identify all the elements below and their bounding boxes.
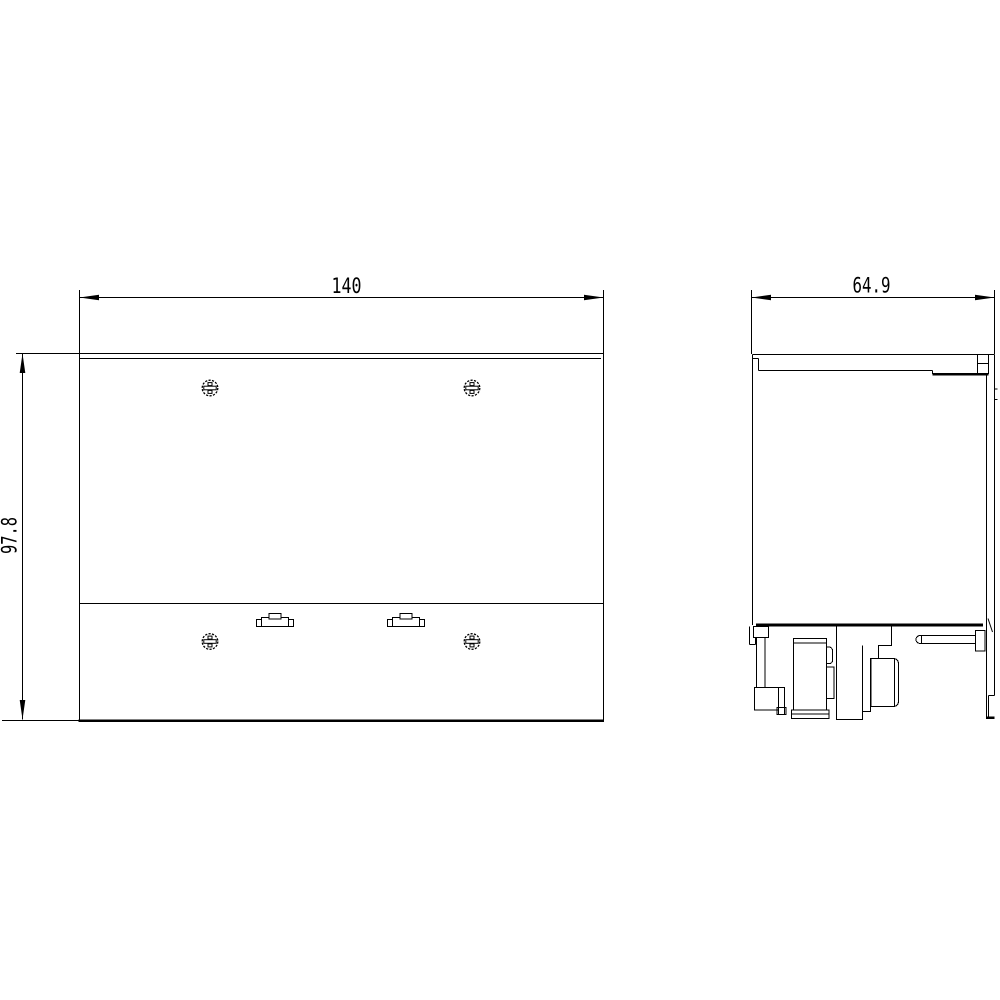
screw-heads — [202, 380, 480, 649]
side-view — [750, 355, 998, 720]
technical-drawing: 140 97.8 64.9 — [0, 0, 1000, 1000]
din-clip-front — [257, 614, 294, 627]
dimension-drawing-canvas: 140 97.8 64.9 — [0, 0, 1000, 1000]
height-dimension: 97.8 — [0, 354, 79, 721]
arrow-left-icon — [752, 295, 772, 300]
arrow-down-icon — [20, 700, 26, 720]
arrow-right-icon — [975, 295, 995, 300]
screw-head — [202, 634, 218, 650]
clip-slider — [792, 639, 835, 719]
din-clip-front — [388, 614, 425, 627]
clip-center-block — [837, 627, 892, 720]
side-view-top-strip — [753, 355, 995, 626]
depth-extension-lines — [752, 290, 995, 354]
clip-rear-fin — [986, 619, 995, 718]
width-dimension-label: 140 — [332, 274, 362, 298]
screw-head — [202, 380, 218, 396]
clip-plug — [871, 659, 899, 707]
clip-release-rod — [916, 631, 985, 652]
front-view-outline — [80, 354, 604, 721]
front-clips — [257, 614, 425, 627]
side-view-body — [987, 355, 998, 718]
front-view — [79, 354, 605, 721]
width-dimension: 140 — [80, 274, 604, 353]
arrow-left-icon — [80, 295, 100, 300]
arrow-right-icon — [584, 295, 604, 300]
arrow-up-icon — [20, 354, 26, 374]
screw-head — [464, 634, 480, 650]
depth-dimension: 64.9 — [752, 274, 995, 355]
din-clip-assembly — [750, 619, 995, 720]
width-extension-lines — [80, 290, 604, 353]
clip-left-hook — [750, 627, 769, 645]
height-dimension-label: 97.8 — [0, 517, 22, 554]
screw-head — [464, 380, 480, 396]
depth-dimension-label: 64.9 — [853, 274, 891, 298]
clip-left-block — [755, 638, 787, 715]
